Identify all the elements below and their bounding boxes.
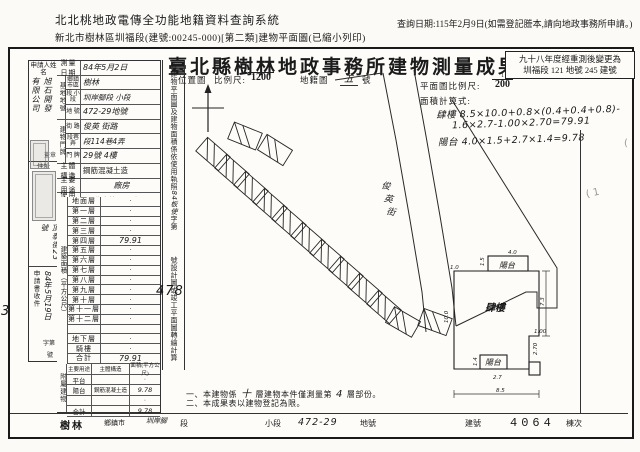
- attached-rows: 平台·陽台鋼筋混凝土造9.78·合計9.78: [67, 375, 160, 417]
- dimension-label: 1.5: [480, 257, 486, 266]
- receipt-cell: 申請書收件 84年5月19日 字第 號: [29, 267, 58, 361]
- attached-row: 平台·: [67, 375, 160, 385]
- survey-date-value: 84年5月2日: [81, 62, 160, 73]
- source-note-strip: 本建物平面圖及建物面積係依使用執照84板使字第號設計圖或竣工平面圖轉繪計算: [162, 60, 185, 370]
- remeasure-line1: 九十八年度經重測後變更為: [509, 54, 631, 65]
- dimension-label: 1.4: [473, 357, 479, 366]
- floor-area-value: ·: [101, 286, 160, 294]
- section-label: 段 小段: [66, 90, 81, 104]
- source-note-part1: 本建物平面圖及建物面積係依使用執照: [170, 63, 178, 191]
- receipt-no-prefix: 字第: [43, 338, 55, 347]
- plan-scale-denominator: 200: [492, 79, 513, 90]
- balcony-top-label: 陽台: [499, 261, 516, 270]
- strip-section-hand: 圳岸腳: [146, 416, 167, 426]
- floor-area-value: ·: [101, 315, 160, 323]
- attached-col-area: 面積(平方公尺): [130, 361, 160, 377]
- lane-row: 段巷弄 段114巷4弄: [66, 134, 160, 149]
- dimension-label: 2.70: [533, 342, 539, 355]
- plan-scale-label: 平面圖比例尺:: [420, 80, 480, 92]
- town-value: 樹林: [81, 77, 160, 88]
- floor-label: 騎樓: [68, 344, 101, 353]
- lane-label: 段巷弄: [66, 134, 81, 148]
- floor-area-value: ·: [101, 246, 160, 254]
- survey-date-label: 測量日期: [57, 61, 81, 75]
- attached-structure: [92, 375, 130, 384]
- right-divider-line: [580, 130, 581, 413]
- floor-label: 第十二層: [68, 315, 101, 324]
- street-label-char: 俊: [380, 180, 392, 193]
- floor-area-value: ·: [101, 276, 160, 284]
- note-line1-c: 層部份。: [347, 390, 381, 399]
- section-value: 圳岸腳段 小段: [81, 92, 160, 103]
- floor-area-value: ·: [101, 207, 160, 215]
- street-label-char: 英: [383, 193, 396, 206]
- attached-usage: 平台: [67, 375, 92, 384]
- building-door-group-label: 建物門牌: [57, 120, 66, 163]
- room-label: 肆樓: [485, 302, 507, 314]
- strip-building-label: 建號: [465, 418, 481, 429]
- attached-col-structure: 主體構造: [92, 364, 130, 374]
- floor-area-value: 79.91: [101, 236, 160, 245]
- attached-group-label: 附屬建物: [57, 364, 67, 412]
- attached-row: 陽台鋼筋混凝土造9.78: [67, 385, 160, 395]
- floor-area-value: ·: [101, 227, 160, 235]
- floor-area-group-label: 建築面積（平方公尺）: [57, 197, 68, 364]
- floor-label: 第三層: [68, 226, 101, 235]
- applicant-address-value: 頂泰街23號: [39, 224, 58, 266]
- dimension-label: 1.00: [534, 329, 547, 335]
- attached-structure: [92, 396, 130, 405]
- street-label: 俊英街: [380, 180, 398, 219]
- applicant-name-right: 旭石開發: [42, 77, 53, 113]
- strip-subsection: 小段: [265, 418, 281, 429]
- site-lot-group: 基地地號 鄉鎮市區 樹林 段 小段 圳岸腳段 小段 地 號 472-29地號: [57, 76, 160, 120]
- company-seal-stamp: [30, 140, 49, 169]
- strip-building-unit: 棟次: [566, 418, 582, 429]
- receipt-label: 申請書收件: [30, 270, 40, 308]
- dimension-label: 7.3: [540, 297, 546, 306]
- strip-section-suffix: 段: [180, 418, 188, 429]
- dimension-label: 2.7: [493, 375, 502, 381]
- attached-area: ·: [130, 376, 160, 383]
- floor-label: 合計: [68, 354, 101, 363]
- formula-label: 面積計算式:: [420, 95, 471, 107]
- floor-label: 第四層: [68, 236, 101, 245]
- strip-lot-suffix: 地號: [360, 418, 376, 429]
- strip-town: 樹林: [60, 417, 84, 432]
- building-door-group: 建物門牌 街 路 俊英 街路 段巷弄 段114巷4弄 門 牌 29號 4樓: [57, 120, 160, 164]
- strip-building-number: 4064: [510, 416, 555, 430]
- street-label: 街 路: [66, 120, 81, 134]
- receipt-date: 84年5月19日: [42, 271, 53, 320]
- town-label: 鄉鎮市區: [66, 76, 81, 90]
- print-info: 新北市樹林區圳福段(建號:00245-000)[第二類]建物平面圖(已縮小列印): [55, 30, 366, 44]
- strip-lot-number: 472-29: [298, 417, 338, 428]
- floor-label: 第一層: [68, 207, 101, 216]
- dimension-label: 1.0: [450, 265, 459, 271]
- street-value: 俊英 街路: [81, 121, 160, 132]
- floor-area-value: ·: [101, 197, 160, 205]
- survey-date-row: 測量日期 84年5月2日: [57, 61, 160, 76]
- structure-value: 鋼筋混凝土造: [81, 165, 160, 176]
- attached-col-usage: 主要用途: [67, 364, 92, 374]
- receipt-no-suffix: 號: [47, 350, 53, 359]
- survey-table: 測量日期 84年5月2日 基地地號 鄉鎮市區 樹林 段 小段 圳岸腳段 小段 地…: [57, 60, 161, 207]
- floor-label: 第六層: [68, 256, 101, 265]
- system-title: 北北桃地政電傳全功能地籍資料查詢系統: [55, 12, 280, 28]
- note-line2: 二、本成果表以建物登記為限。: [186, 398, 305, 409]
- unit-outline: [454, 271, 539, 369]
- attached-usage: 陽台: [67, 385, 92, 394]
- query-date: 查詢日期:115年2月9日(如需登記謄本,請向地政事務所申請。): [397, 17, 632, 30]
- license-number-handwritten: 478: [156, 284, 184, 299]
- map-boundary-top: [335, 73, 382, 80]
- floor-area-value: ·: [101, 217, 160, 225]
- floor-area-value: ·: [101, 296, 160, 304]
- attached-structure: 鋼筋混凝土造: [92, 385, 130, 394]
- source-note-part3: 號設計圖或竣工平面圖轉繪計算: [170, 256, 178, 361]
- site-lot-group-label: 基地地號: [57, 76, 66, 119]
- lane-value: 段114巷4弄: [81, 136, 160, 147]
- floor-label: 地面層: [68, 197, 101, 206]
- floor-area-value: ·: [101, 305, 160, 313]
- source-note-hand1: 84板使: [170, 191, 178, 216]
- dimension-label: 8.5: [496, 388, 505, 394]
- floor-label: 第五層: [68, 246, 101, 255]
- bottom-strip: 樹林 鄉鎮市 圳岸腳 段 小段 472-29 地號 建號 4064 棟次: [10, 413, 628, 434]
- floor-label: [68, 325, 101, 334]
- attached-area: 9.78: [130, 386, 160, 394]
- floor-label: 第十一層: [68, 305, 101, 314]
- door-value: 29號 4樓: [81, 150, 160, 161]
- usage-value: 廠房: [81, 180, 160, 191]
- floor-label: 第九層: [68, 285, 101, 294]
- floor-label: 第十層: [68, 295, 101, 304]
- dimension-label: 10.0: [444, 310, 450, 323]
- floor-label: 第八層: [68, 276, 101, 285]
- notch-outline: [529, 362, 540, 375]
- town-row: 鄉鎮市區 樹林: [66, 76, 160, 91]
- dimension-label: 4.0: [508, 250, 517, 256]
- attached-building-table: 附屬建物 主要用途 主體構造 面積(平方公尺) 平台·陽台鋼筋混凝土造9.78·…: [57, 364, 161, 413]
- applicant-name-left: 有限公司: [30, 77, 41, 113]
- faint-pencil-mark-2: (: [624, 138, 628, 149]
- floor-label: 地下層: [68, 334, 101, 343]
- floor-row: 第十二層·: [68, 315, 160, 325]
- balcony-bottom-label: 陽台: [485, 358, 502, 367]
- applicant-name-value: 有限公司 旭石開發: [30, 77, 53, 113]
- source-note-part2: 字第: [170, 215, 178, 230]
- street-row: 街 路 俊英 街路: [66, 120, 160, 135]
- floor-area-rows: 地面層·第一層·第二層·第三層·第四層79.91第五層·第六層·第七層·第八層·…: [68, 197, 160, 364]
- parcel-chain: [196, 122, 452, 337]
- floor-label: 第七層: [68, 266, 101, 275]
- attached-usage: [67, 396, 92, 405]
- section-row: 段 小段 圳岸腳段 小段: [66, 90, 160, 105]
- floor-area-table: 建築面積（平方公尺） 地面層·第一層·第二層·第三層·第四層79.91第五層·第…: [57, 197, 161, 364]
- floor-area-value: ·: [101, 266, 160, 274]
- lot-row: 地 號 472-29地號: [66, 105, 160, 119]
- floor-area-value: ·: [101, 335, 160, 343]
- note-line1-hand2: 4: [332, 389, 347, 400]
- floor-area-value: ·: [101, 345, 160, 353]
- attached-header-row: 主要用途 主體構造 面積(平方公尺): [67, 364, 160, 375]
- attached-area: ·: [130, 397, 160, 404]
- attached-row: ·: [67, 396, 160, 406]
- street-label-char: 街: [385, 206, 398, 219]
- lot-label: 地 號: [66, 105, 81, 119]
- lot-value: 472-29地號: [81, 106, 160, 117]
- floor-label: 第二層: [68, 217, 101, 226]
- floor-area-value: ·: [101, 256, 160, 264]
- strip-town-suffix: 鄉鎮市: [104, 418, 125, 428]
- applicant-name-label: 申請人姓名: [29, 61, 58, 76]
- floor-plan-drawing: 肆樓 陽台 陽台 4.01.51.010.07.31.002.701.42.78…: [440, 248, 610, 408]
- door-row: 門 牌 29號 4樓: [66, 149, 160, 163]
- address-seal-stamp: [32, 171, 56, 221]
- plan-scale-value: 1 200: [492, 73, 513, 90]
- plan-dimension-labels: 4.01.51.010.07.31.002.701.42.78.5: [444, 250, 547, 394]
